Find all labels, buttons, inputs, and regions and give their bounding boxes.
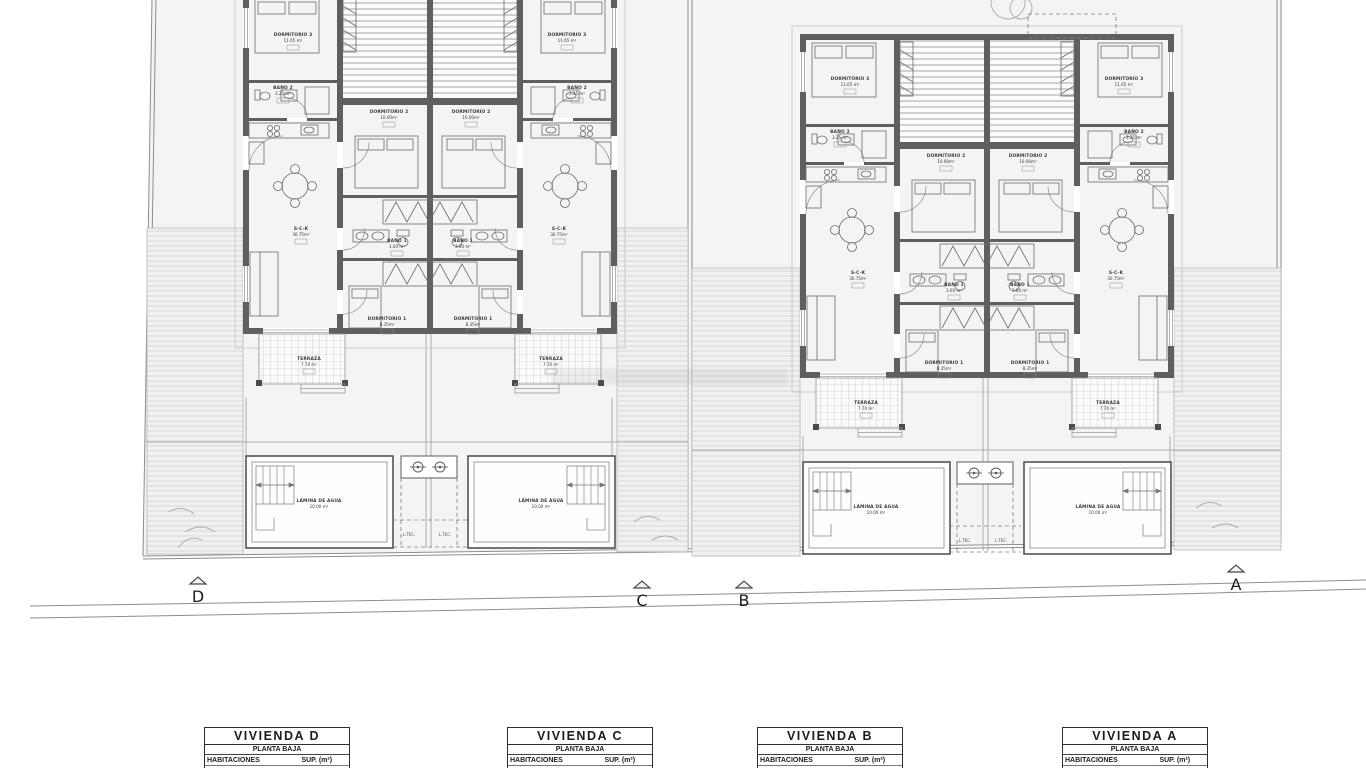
table-title: VIVIENDA D: [205, 728, 349, 745]
svg-text:11.65 m²: 11.65 m²: [841, 82, 860, 87]
caret-icon: [1226, 564, 1246, 573]
pool-label: LÁMINA DE AGUA: [1076, 503, 1121, 510]
svg-text:8.35m²: 8.35m²: [1023, 366, 1038, 371]
svg-text:7.70 m²: 7.70 m²: [1100, 406, 1116, 411]
svg-text:10.00m²: 10.00m²: [1019, 159, 1037, 164]
svg-text:3.60 m²: 3.60 m²: [389, 244, 405, 249]
svg-text:3.60 m²: 3.60 m²: [455, 244, 471, 249]
table-vivienda-b: VIVIENDA B PLANTA BAJA HABITACIONESSUP. …: [757, 727, 903, 768]
table-subtitle: PLANTA BAJA: [205, 745, 349, 755]
svg-text:3.25 m²: 3.25 m²: [569, 91, 585, 96]
svg-text:10.00 m²: 10.00 m²: [867, 510, 886, 515]
pool-label: LÁMINA DE AGUA: [519, 497, 564, 504]
svg-text:3.60 m²: 3.60 m²: [1012, 288, 1028, 293]
svg-text:10.00m²: 10.00m²: [380, 115, 398, 120]
section-marker-b: B: [730, 576, 758, 608]
svg-text:10.00m²: 10.00m²: [462, 115, 480, 120]
svg-text:10.00 m²: 10.00 m²: [1089, 510, 1108, 515]
section-marker-a: A: [1222, 560, 1250, 592]
marker-letter: C: [628, 594, 656, 608]
svg-text:10.00 m²: 10.00 m²: [532, 504, 551, 509]
table-vivienda-a: VIVIENDA A PLANTA BAJA HABITACIONESSUP. …: [1062, 727, 1208, 768]
pool-label: LÁMINA DE AGUA: [297, 497, 342, 504]
watermark: [552, 369, 788, 385]
road-lines: [30, 580, 1366, 618]
svg-text:3.25 m²: 3.25 m²: [275, 91, 291, 96]
table-header: HABITACIONESSUP. (m²): [508, 755, 652, 766]
ltec-label: L.TEC.: [959, 538, 972, 543]
table-title: VIVIENDA A: [1063, 728, 1207, 745]
pool-label: LÁMINA DE AGUA: [854, 503, 899, 510]
room-label: BAÑO 2: [1124, 128, 1144, 135]
table-header: HABITACIONESSUP. (m²): [1063, 755, 1207, 766]
ltec-label: L.TEC.: [439, 532, 452, 537]
marker-letter: D: [184, 590, 212, 604]
ltec-label: L.TEC.: [403, 532, 416, 537]
table-subtitle: PLANTA BAJA: [758, 745, 902, 755]
marker-letter: A: [1222, 578, 1250, 592]
table-subtitle: PLANTA BAJA: [508, 745, 652, 755]
svg-text:3.25 m²: 3.25 m²: [1126, 135, 1142, 140]
svg-text:11.65 m²: 11.65 m²: [558, 38, 577, 43]
room-label: BAÑO 2: [830, 128, 850, 135]
svg-text:10.00 m²: 10.00 m²: [310, 504, 329, 509]
room-label: BAÑO 2: [273, 84, 293, 91]
floor-plan-sheet: DORMITORIO 3 11.65 m² BAÑO 2 3.25 m² DOR…: [0, 0, 1366, 768]
room-label: BAÑO 2: [567, 84, 587, 91]
ltec-label: L.TEC.: [995, 538, 1008, 543]
svg-text:3.25 m²: 3.25 m²: [832, 135, 848, 140]
room-label: BAÑO 1: [1010, 281, 1030, 288]
svg-text:11.65 m²: 11.65 m²: [284, 38, 303, 43]
svg-text:30.75m²: 30.75m²: [849, 276, 867, 281]
caret-icon: [188, 576, 208, 585]
svg-text:7.70 m²: 7.70 m²: [543, 362, 559, 367]
caret-icon: [632, 580, 652, 589]
svg-text:8.35m²: 8.35m²: [466, 322, 481, 327]
room-label: BAÑO 1: [453, 237, 473, 244]
svg-text:30.75m²: 30.75m²: [1107, 276, 1125, 281]
table-vivienda-d: VIVIENDA D PLANTA BAJA HABITACIONESSUP. …: [204, 727, 350, 768]
room-label: BAÑO 1: [387, 237, 407, 244]
table-header: HABITACIONESSUP. (m²): [758, 755, 902, 766]
svg-text:8.35m²: 8.35m²: [380, 322, 395, 327]
svg-text:7.70 m²: 7.70 m²: [301, 362, 317, 367]
pool-equipment-left: [401, 456, 457, 478]
svg-text:11.65 m²: 11.65 m²: [1115, 82, 1134, 87]
caret-icon: [734, 580, 754, 589]
svg-text:3.60 m²: 3.60 m²: [946, 288, 962, 293]
svg-text:8.35m²: 8.35m²: [937, 366, 952, 371]
table-subtitle: PLANTA BAJA: [1063, 745, 1207, 755]
table-title: VIVIENDA B: [758, 728, 902, 745]
svg-text:7.70 m²: 7.70 m²: [858, 406, 874, 411]
room-label: BAÑO 1: [944, 281, 964, 288]
marker-letter: B: [730, 594, 758, 608]
section-marker-c: C: [628, 576, 656, 608]
svg-text:30.75m²: 30.75m²: [550, 232, 568, 237]
table-title: VIVIENDA C: [508, 728, 652, 745]
table-vivienda-c: VIVIENDA C PLANTA BAJA HABITACIONESSUP. …: [507, 727, 653, 768]
table-header: HABITACIONESSUP. (m²): [205, 755, 349, 766]
svg-text:10.00m²: 10.00m²: [937, 159, 955, 164]
section-marker-d: D: [184, 572, 212, 604]
pool-equipment-right: [957, 462, 1013, 484]
svg-text:30.75m²: 30.75m²: [292, 232, 310, 237]
